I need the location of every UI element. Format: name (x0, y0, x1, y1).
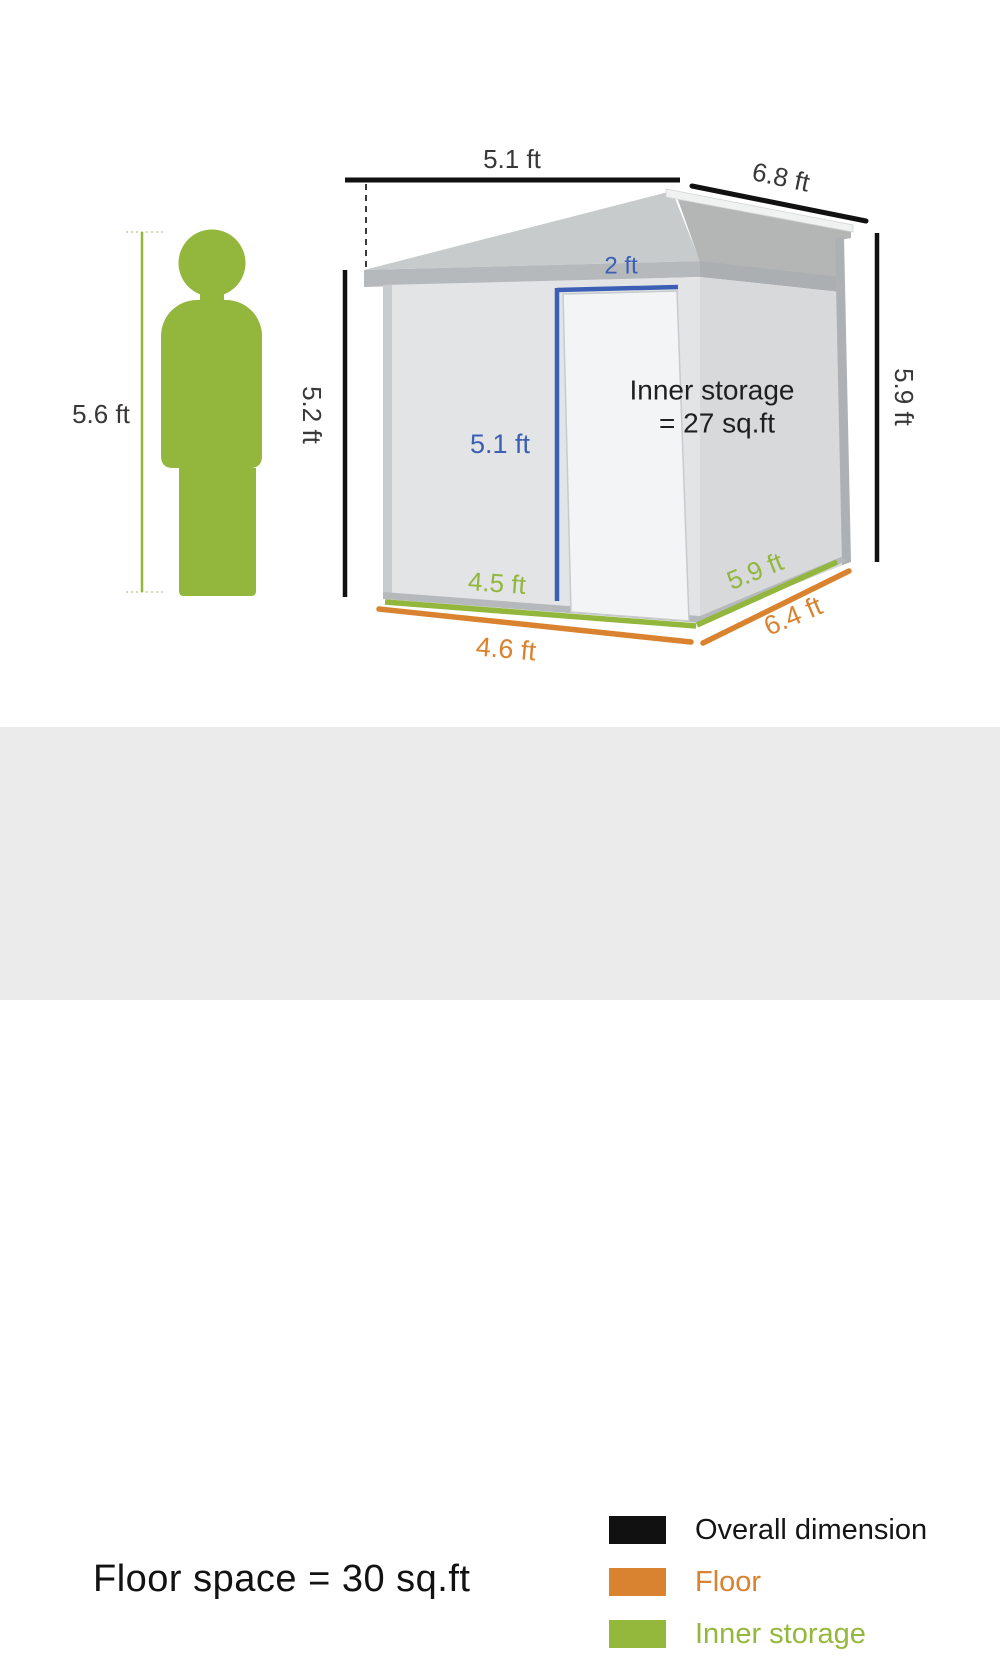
overall-depth-label: 6.8 ft (750, 156, 814, 198)
legend-row-inner: Inner storage (609, 1620, 927, 1648)
overall-width-label: 5.1 ft (483, 144, 542, 174)
front-height-label: 5.2 ft (297, 386, 327, 445)
person-height-label: 5.6 ft (72, 399, 131, 429)
inner-storage-swatch (609, 1620, 666, 1648)
inner-front-label: 4.5 ft (467, 566, 528, 600)
legend: Overall dimension Floor Inner storage (609, 1516, 927, 1672)
legend-label-inner: Inner storage (695, 1620, 866, 1648)
door-height-label: 5.1 ft (470, 429, 531, 459)
floor-space-text: Floor space = 30 sq.ft (93, 1558, 470, 1601)
legend-row-overall: Overall dimension (609, 1516, 927, 1544)
legend-label-floor: Floor (695, 1568, 761, 1596)
overall-dimension-swatch (609, 1516, 666, 1544)
floor-swatch (609, 1568, 666, 1596)
shed-door (563, 291, 689, 621)
legend-row-floor: Floor (609, 1568, 927, 1596)
footer-panel: Floor space = 30 sq.ft Overall dimension… (0, 727, 1000, 1000)
door-width-label: 2 ft (604, 253, 638, 280)
back-height-label: 5.9 ft (889, 368, 919, 427)
person-body (161, 300, 262, 596)
inner-storage-note-line2: = 27 sq.ft (659, 408, 775, 439)
diagram-canvas: 5.6 ft 5.1 ft 6.8 ft 5.2 ft 5.9 ft 2 ft … (0, 0, 1000, 727)
shed-dimension-diagram: 5.6 ft 5.1 ft 6.8 ft 5.2 ft 5.9 ft 2 ft … (0, 0, 1000, 727)
shed-roof (364, 191, 700, 270)
door-width-line (557, 287, 678, 290)
legend-label-overall: Overall dimension (695, 1516, 927, 1544)
floor-front-label: 4.6 ft (475, 631, 538, 666)
inner-storage-note-line1: Inner storage (630, 375, 795, 406)
shed-front-wall-left-trim (383, 285, 392, 599)
